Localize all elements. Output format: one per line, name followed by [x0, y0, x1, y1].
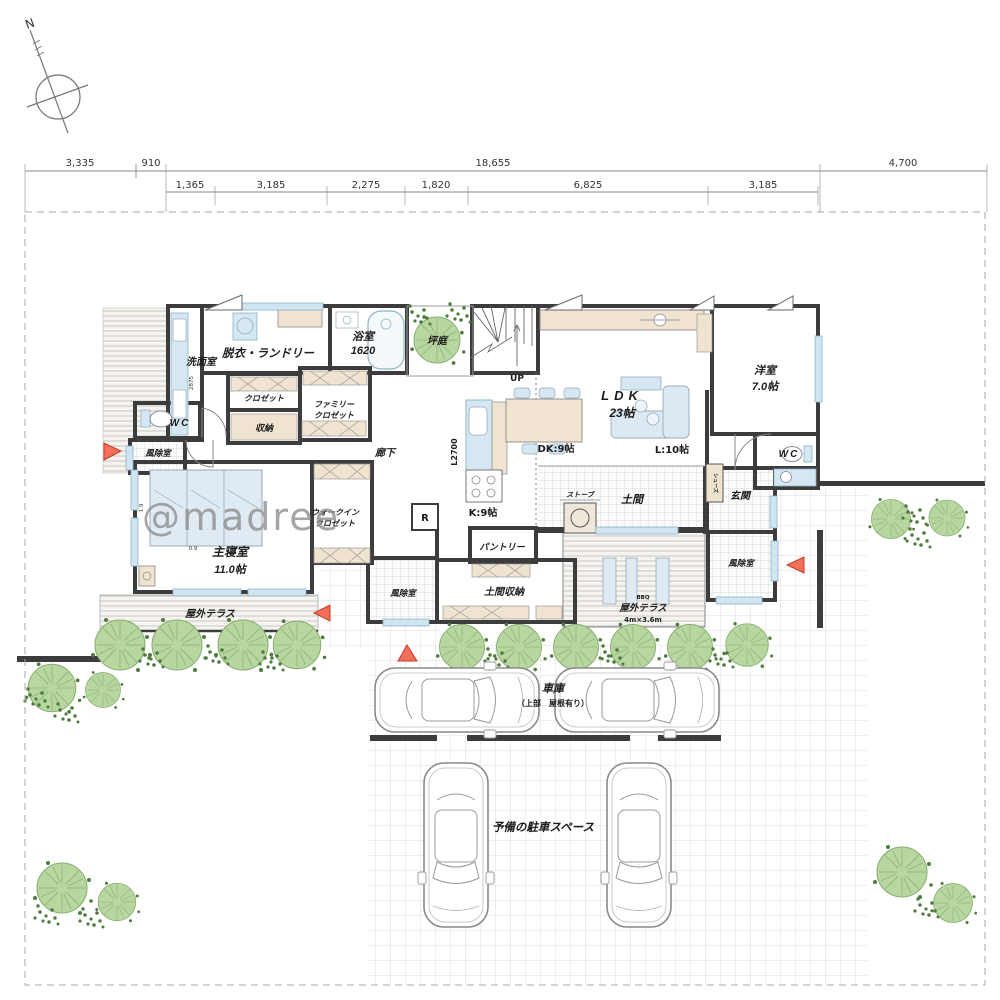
label-master: 主寝室 — [212, 545, 250, 559]
compass-label: N — [23, 16, 36, 32]
dining-table — [506, 399, 582, 442]
garage-wall — [370, 735, 437, 741]
laundry-counter — [278, 310, 322, 327]
label-western-size: 7.0帖 — [752, 380, 780, 393]
label-storage: 収納 — [255, 423, 274, 433]
garden-wall — [17, 656, 103, 662]
label-bbq: BBQ — [636, 595, 649, 601]
basin — [774, 469, 816, 486]
label-garage: 車庫 — [542, 682, 566, 695]
label-doma: 土間 — [621, 493, 645, 506]
label-master-size: 11.0帖 — [214, 563, 248, 576]
sofa — [663, 386, 689, 438]
label-washroom: 洗面室 — [186, 356, 218, 368]
shower — [336, 312, 358, 328]
site-wall-east — [818, 481, 985, 486]
label-garage-note: （上部 屋根有り） — [517, 698, 589, 708]
screen-wall — [817, 530, 823, 628]
bench — [656, 558, 669, 604]
sliding-door — [596, 527, 678, 534]
tree — [873, 845, 933, 899]
dim-label: 1,820 — [422, 180, 451, 191]
toilet-left — [141, 410, 172, 427]
label-courtyard: 坪庭 — [427, 335, 449, 347]
kitchen-sink — [469, 407, 487, 435]
floor-plan-svg: 3,335 910 18,655 4,700 1,365 3,185 2,275… — [0, 0, 1000, 1000]
label-fridge: R — [421, 513, 429, 524]
dim-label: 6,825 — [574, 180, 603, 191]
label-dk: DK:9帖 — [537, 442, 574, 455]
label-bath: 浴室 — [352, 330, 376, 343]
label-wc-right: WC — [779, 449, 800, 460]
label-genkan: 玄関 — [730, 490, 752, 502]
label-ldk: LDK — [601, 388, 643, 403]
label-family-closet-2: クロゼット — [314, 411, 354, 420]
label-windbreak-left: 風除室 — [144, 448, 172, 458]
tree — [926, 499, 969, 538]
label-stove: ストーブ — [566, 490, 596, 499]
dim-label: 18,655 — [476, 158, 511, 169]
entry-door — [770, 496, 777, 528]
label-windbreak-right: 風除室 — [727, 558, 755, 568]
tree — [95, 882, 140, 923]
wood-stove — [560, 500, 600, 533]
label-pantry: パントリー — [479, 542, 525, 552]
label-shoes: シューズ — [712, 473, 719, 493]
label-up: UP — [510, 374, 524, 384]
dim-label: 3,185 — [749, 180, 778, 191]
label-western: 洋室 — [754, 364, 778, 377]
dim-label: 4,700 — [889, 158, 918, 169]
car-spare-1 — [418, 763, 494, 927]
label-living: L:10帖 — [655, 443, 689, 456]
washing-machine — [233, 313, 257, 340]
dim-label: 3,185 — [257, 180, 286, 191]
bench — [603, 558, 616, 604]
label-windbreak-bottom: 風除室 — [389, 588, 417, 598]
compass: N — [23, 16, 88, 133]
car-garage-1 — [375, 662, 539, 738]
label-terrace-size: 4m×3.6m — [624, 616, 662, 624]
watermark: @madree — [142, 495, 340, 539]
label-kitchen: K:9帖 — [469, 506, 498, 519]
label-laundry: 脱衣・ランドリー — [221, 347, 314, 360]
dimension-lines — [25, 164, 987, 212]
tree — [24, 662, 81, 713]
cooktop — [466, 470, 502, 502]
dimension-labels: 3,335 910 18,655 4,700 1,365 3,185 2,275… — [66, 158, 918, 191]
tree — [33, 861, 93, 915]
label-family-closet-1: ファミリー — [314, 400, 355, 409]
label-wash-dim: 2875 — [189, 376, 195, 390]
label-terrace-left: 屋外テラス — [184, 608, 235, 620]
label-terrace-right: 屋外テラス — [618, 602, 667, 614]
bench — [626, 558, 637, 604]
label-doma-storage: 土間収納 — [484, 586, 526, 598]
car-spare-2 — [601, 763, 677, 927]
label-bed-dim-d: 0.9 — [189, 546, 198, 552]
label-corridor: 廊下 — [374, 447, 397, 459]
label-ldk-size: 23帖 — [608, 406, 636, 420]
tree — [868, 498, 915, 540]
label-bath-size: 1620 — [351, 345, 376, 357]
tree — [83, 671, 125, 709]
label-kitchen-counter: L2700 — [450, 438, 459, 466]
label-closet: クロゼット — [244, 394, 284, 403]
dim-label: 3,335 — [66, 158, 95, 169]
label-spare-parking: 予備の駐車スペース — [492, 821, 595, 834]
dim-label: 910 — [141, 158, 160, 169]
dim-label: 1,365 — [176, 180, 205, 191]
nightstand — [139, 566, 155, 586]
dim-label: 2,275 — [352, 180, 381, 191]
label-wc-left: WC — [170, 418, 191, 429]
floor-plan-page: 3,335 910 18,655 4,700 1,365 3,185 2,275… — [0, 0, 1000, 1000]
